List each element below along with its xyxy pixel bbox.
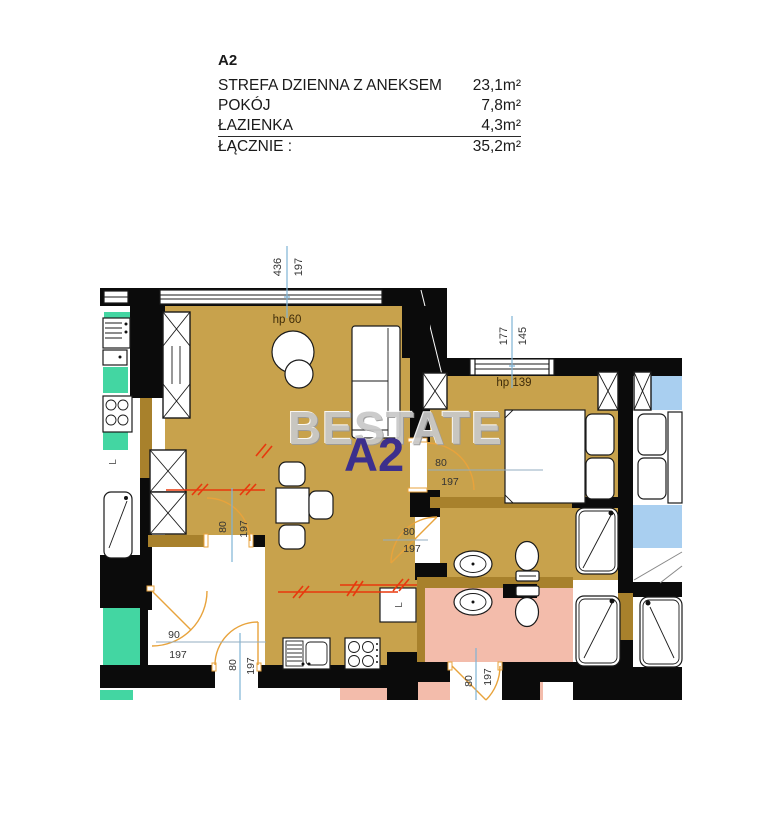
bathroom-sink: [454, 551, 492, 577]
door-width: 80: [435, 457, 447, 469]
door-height: 197: [482, 668, 494, 686]
bedroom-window-sill: hp 139: [496, 377, 531, 389]
left-window-fragment: [104, 291, 128, 303]
neighbor-shower: [640, 597, 682, 667]
top-window-width: 436: [272, 258, 284, 276]
top-window-sill: hp 60: [273, 314, 302, 326]
door-height: 197: [245, 657, 257, 675]
door-width: 80: [217, 521, 229, 533]
top-window-height: 197: [293, 258, 305, 276]
neighbor-bath-shower: [576, 596, 620, 666]
wardrobe: [163, 312, 190, 418]
toilet: [516, 542, 540, 582]
door-height: 197: [169, 649, 187, 661]
door-width: 90: [168, 629, 180, 641]
kitchen-sink: [283, 638, 330, 669]
watermark-unit-label: A2: [344, 427, 404, 482]
door-width: 80: [463, 675, 475, 687]
pillow: [586, 414, 614, 455]
bedroom-window-width: 177: [498, 327, 510, 345]
neighbor-bathroom-floor: [417, 588, 573, 668]
pillow: [586, 458, 614, 499]
door-entrance: [212, 622, 261, 688]
door-height: 197: [441, 476, 459, 488]
neighbor-right-floor: [650, 376, 682, 410]
washer-label: L: [108, 459, 119, 465]
washing-machine: L: [380, 588, 416, 622]
top-window: [160, 290, 382, 304]
washer-label: L: [394, 602, 405, 608]
floor-plan-page: A2 STREFA DZIENNA Z ANEKSEM 23,1m² POKÓJ…: [0, 0, 760, 840]
door-height: 197: [238, 520, 250, 538]
door-height: 197: [403, 543, 421, 555]
door-width: 80: [227, 659, 239, 671]
bedroom-window-height: 145: [517, 327, 529, 345]
door-width: 80: [403, 526, 415, 538]
stove: [345, 638, 380, 669]
neighbor-left-shower: [104, 492, 132, 558]
shower: [576, 508, 618, 574]
